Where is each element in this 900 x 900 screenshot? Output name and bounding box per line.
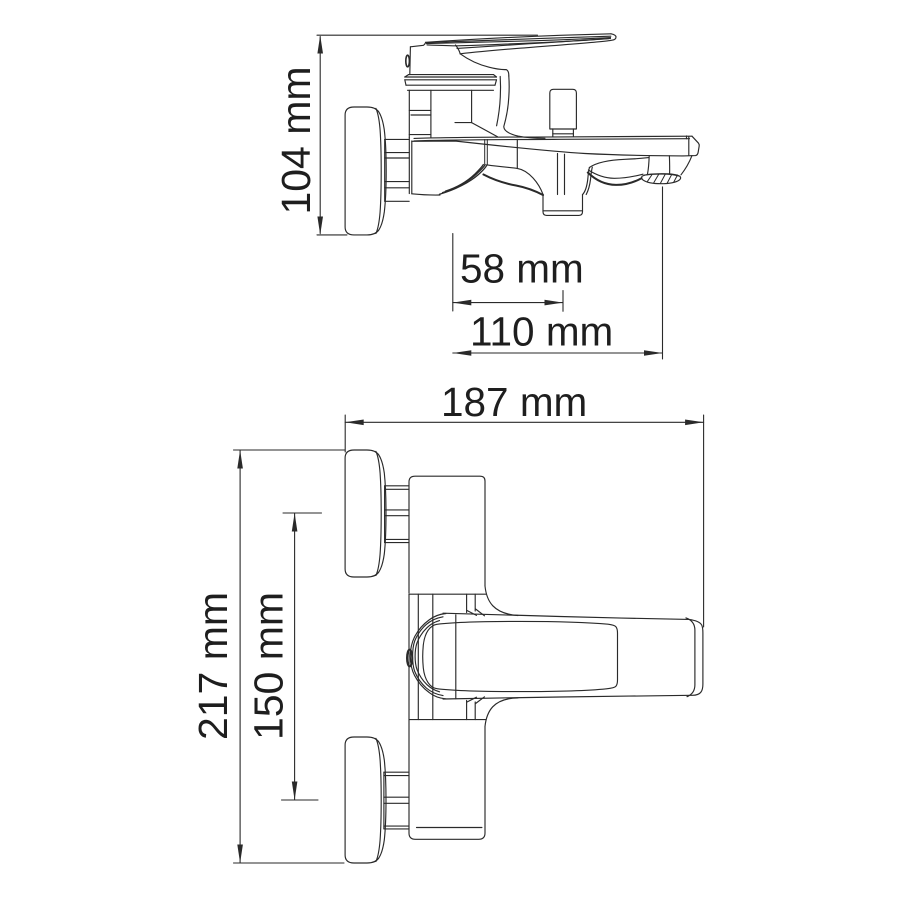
svg-text:110 mm: 110 mm [470,309,613,355]
svg-text:150 mm: 150 mm [246,592,292,740]
svg-text:217 mm: 217 mm [190,592,236,740]
svg-text:104 mm: 104 mm [273,66,319,214]
svg-text:187 mm: 187 mm [441,379,587,425]
svg-text:58 mm: 58 mm [460,246,584,292]
